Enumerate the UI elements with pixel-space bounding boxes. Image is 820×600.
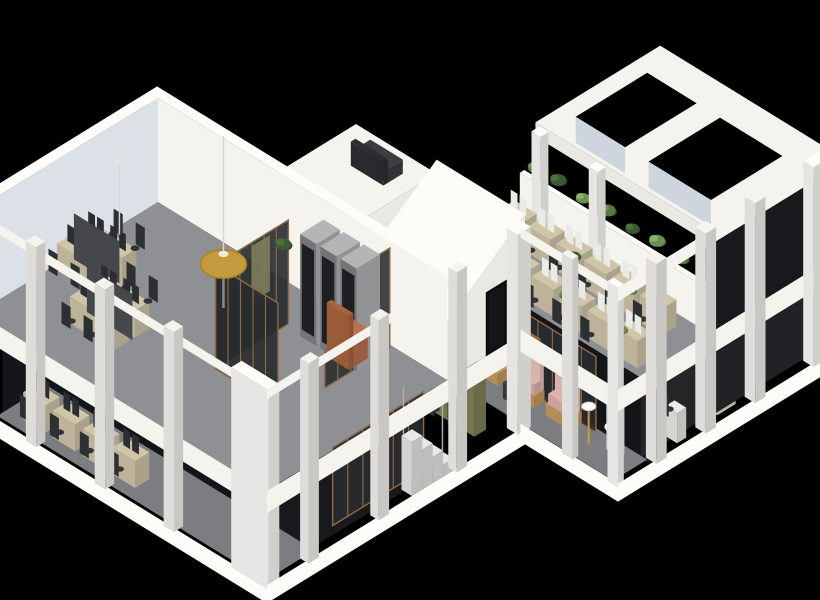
inner-corner-pier (518, 227, 531, 435)
facade-lounge-pillar (562, 253, 573, 459)
front-corner-pier (231, 367, 269, 590)
planter-plant (551, 174, 560, 181)
facade-sw-pillar (36, 242, 45, 448)
central-doorway (487, 282, 505, 355)
facade-sw-pillar (95, 283, 105, 489)
facade-east-pillar (745, 197, 755, 403)
facade-se-pillar (379, 314, 389, 520)
facade-se-pillar (448, 267, 457, 472)
right-corner-pier (608, 281, 619, 487)
facade-se-pillar (300, 358, 308, 563)
facade-sw-pillar (174, 326, 183, 532)
pendant-cord (223, 136, 225, 252)
side-table-stem (588, 408, 590, 444)
floor-lamp-pole (119, 162, 121, 234)
stair-step (402, 436, 412, 496)
meeting-room-plant (276, 239, 285, 246)
floor-lamp-head (115, 158, 123, 163)
facade-se-pillar (457, 266, 467, 472)
facade-east-corner-pier (803, 161, 813, 367)
render-viewport (0, 0, 820, 600)
inner-corner-pier (507, 228, 518, 435)
planter-plant (649, 235, 658, 242)
facade-east-pillar (706, 227, 716, 433)
facade-east-pillar (755, 197, 765, 403)
office-render-svg (0, 0, 820, 600)
facade-east-pillar (695, 227, 705, 433)
terrace-sofa-back (383, 159, 388, 186)
office-room-desk (677, 408, 686, 444)
planter-plant (626, 224, 634, 230)
facade-sw-pillar (105, 284, 114, 490)
facade-se-pillar (370, 315, 379, 520)
stair-step (422, 443, 432, 489)
right-corner-pier (618, 284, 624, 488)
lounge-bench-back-cushion (541, 363, 544, 391)
upper-left-desk-pod-chair (131, 245, 140, 251)
pendant-lamp (218, 251, 228, 257)
stair-railing-post (442, 403, 444, 453)
side-table-top (582, 402, 596, 411)
upper-left-desk-pod-chair (144, 298, 153, 304)
planter-plant (576, 193, 584, 199)
facade-lounge-pillar (573, 256, 579, 460)
stair-step (412, 436, 422, 496)
facade-east-pillar (646, 258, 656, 464)
facade-east-corner-pier (814, 155, 820, 367)
facade-se-pillar (309, 357, 319, 563)
facade-east-pillar (656, 258, 666, 464)
phone-booth-door (302, 243, 314, 337)
facade-sw-pillar (164, 326, 174, 532)
facade-sw-pillar (26, 241, 36, 447)
